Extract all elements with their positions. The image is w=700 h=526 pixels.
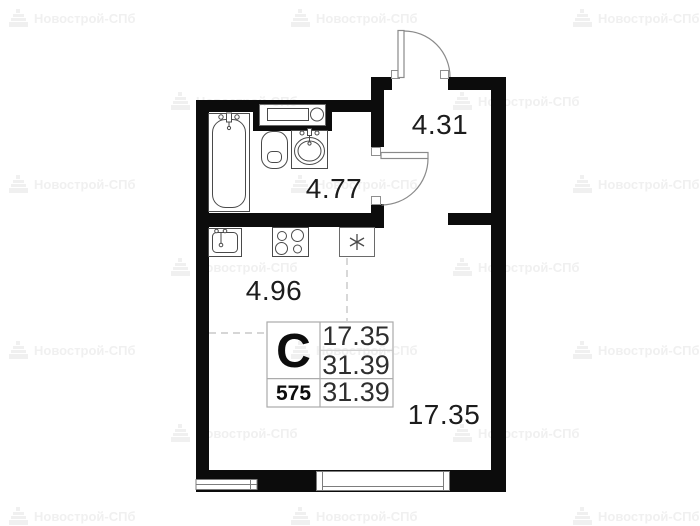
bathtub-icon bbox=[209, 113, 250, 212]
total-area-value: 31.39 bbox=[322, 350, 390, 380]
window-left bbox=[196, 480, 257, 490]
washing-machine-icon bbox=[260, 105, 326, 126]
fridge-icon bbox=[340, 228, 375, 257]
toilet-icon bbox=[262, 132, 288, 169]
dimension-label-hallway: 4.31 bbox=[412, 109, 469, 140]
unit-number: 575 bbox=[276, 382, 311, 405]
dimension-label-living-room: 17.35 bbox=[408, 399, 481, 430]
dimension-label-kitchen: 4.96 bbox=[246, 275, 303, 306]
info-table: С 17.35 31.39 575 31.39 bbox=[267, 321, 393, 407]
washbasin-icon bbox=[292, 129, 328, 169]
total-area-value-2: 31.39 bbox=[322, 377, 390, 407]
living-area-value: 17.35 bbox=[322, 321, 390, 351]
window-main bbox=[317, 472, 450, 491]
interior-door bbox=[381, 153, 428, 206]
kitchen-sink-icon bbox=[209, 229, 242, 257]
apartment-type: С bbox=[276, 325, 311, 378]
dimension-label-bathroom: 4.77 bbox=[306, 173, 363, 204]
stove-icon bbox=[273, 228, 309, 257]
floor-plan: С 17.35 31.39 575 31.39 4.31 4.77 4.96 1… bbox=[0, 0, 700, 525]
